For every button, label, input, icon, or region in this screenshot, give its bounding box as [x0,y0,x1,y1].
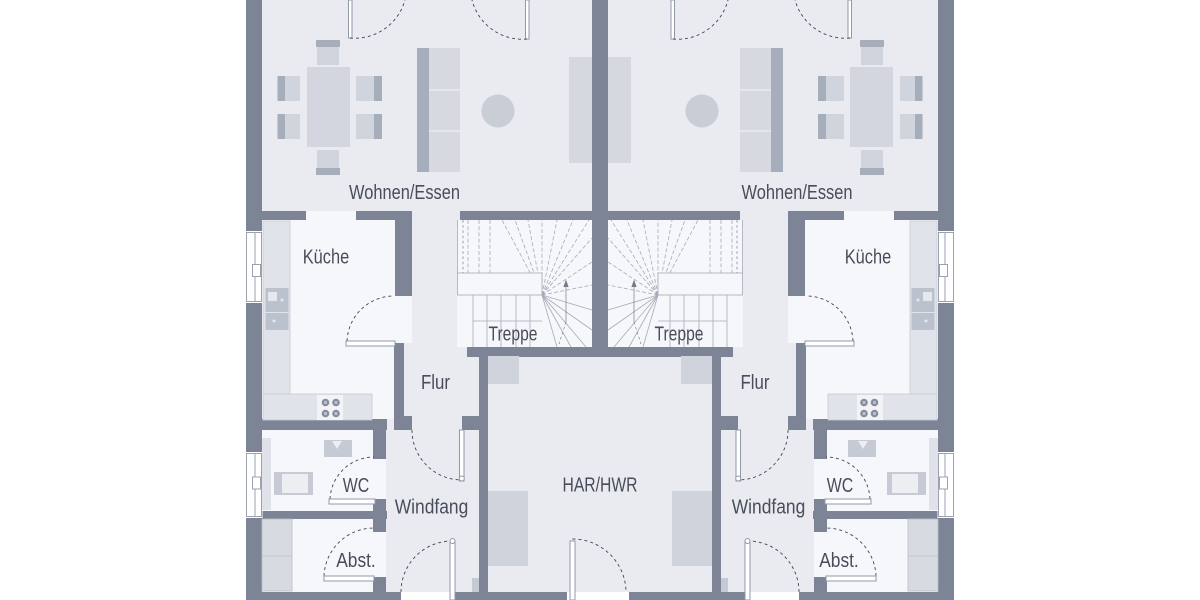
svg-text:Wohnen/Essen: Wohnen/Essen [349,182,460,204]
svg-text:Küche: Küche [303,247,350,269]
svg-text:Windfang: Windfang [395,497,469,519]
svg-text:Treppe: Treppe [489,324,538,346]
svg-text:Flur: Flur [741,372,770,394]
svg-text:Flur: Flur [421,372,450,394]
svg-text:Wohnen/Essen: Wohnen/Essen [742,182,853,204]
svg-text:Windfang: Windfang [732,497,806,519]
svg-text:WC: WC [343,475,370,497]
svg-text:Abst.: Abst. [336,550,376,572]
svg-text:HAR/HWR: HAR/HWR [563,475,638,497]
svg-text:Abst.: Abst. [819,550,859,572]
svg-text:Treppe: Treppe [655,324,704,346]
svg-text:Küche: Küche [845,247,892,269]
svg-text:WC: WC [827,475,854,497]
